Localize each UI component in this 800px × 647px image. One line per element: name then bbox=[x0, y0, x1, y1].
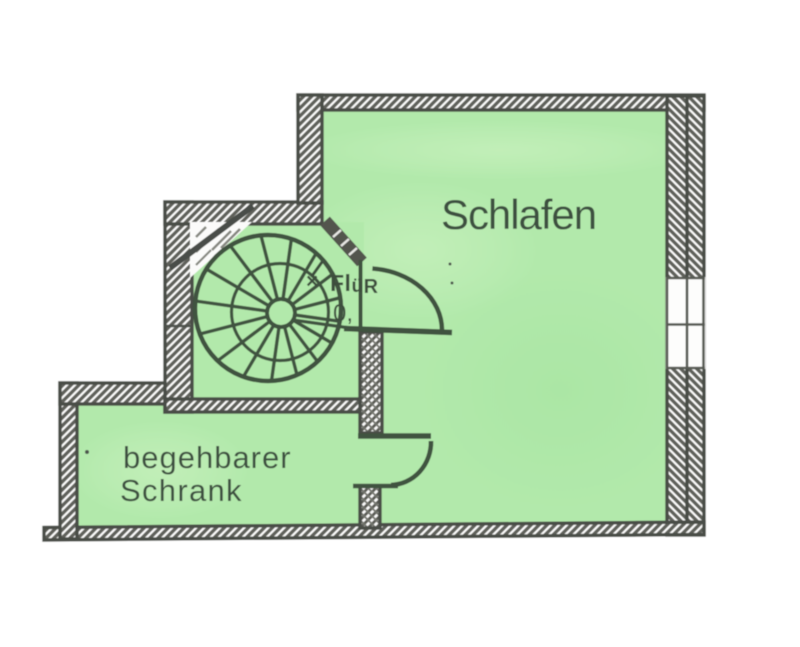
svg-text:Schlafen: Schlafen bbox=[441, 191, 596, 238]
svg-text:Schrank: Schrank bbox=[120, 473, 243, 508]
svg-text:0,: 0, bbox=[333, 300, 353, 327]
svg-text:begehbarer: begehbarer bbox=[123, 440, 292, 475]
